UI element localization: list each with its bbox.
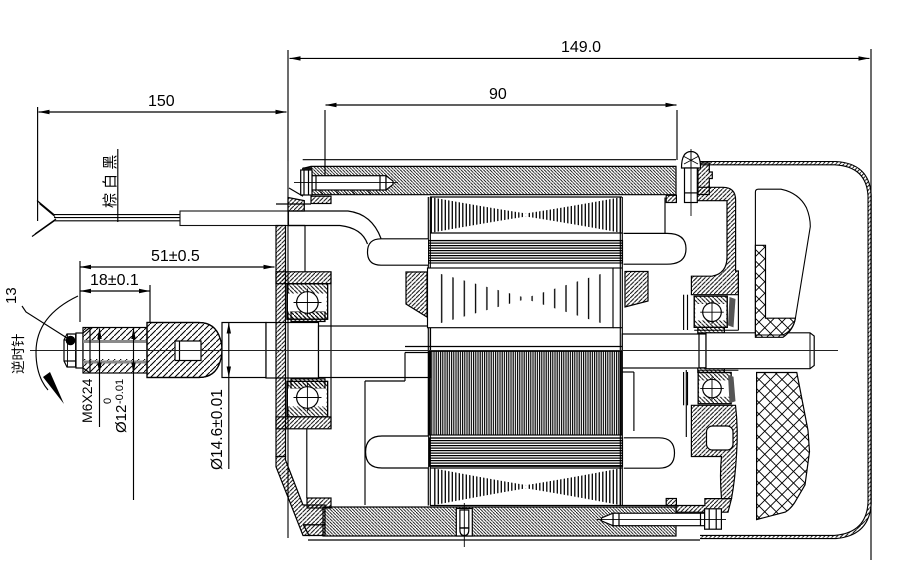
svg-text:棕 白 黑: 棕 白 黑 — [102, 155, 119, 208]
svg-text:Ø12: Ø12 — [113, 405, 130, 433]
svg-text:逆时针: 逆时针 — [11, 334, 26, 375]
svg-text:18±0.1: 18±0.1 — [90, 272, 139, 289]
svg-text:149.0: 149.0 — [561, 39, 601, 56]
svg-text:M6X24: M6X24 — [79, 378, 95, 423]
svg-text:-0.01: -0.01 — [114, 379, 126, 404]
svg-text:0: 0 — [102, 398, 114, 404]
svg-text:150: 150 — [148, 93, 175, 110]
svg-text:13: 13 — [3, 287, 20, 304]
svg-text:Ø14.6±0.01: Ø14.6±0.01 — [209, 389, 226, 470]
svg-text:51±0.5: 51±0.5 — [151, 248, 200, 265]
svg-text:90: 90 — [489, 86, 507, 103]
